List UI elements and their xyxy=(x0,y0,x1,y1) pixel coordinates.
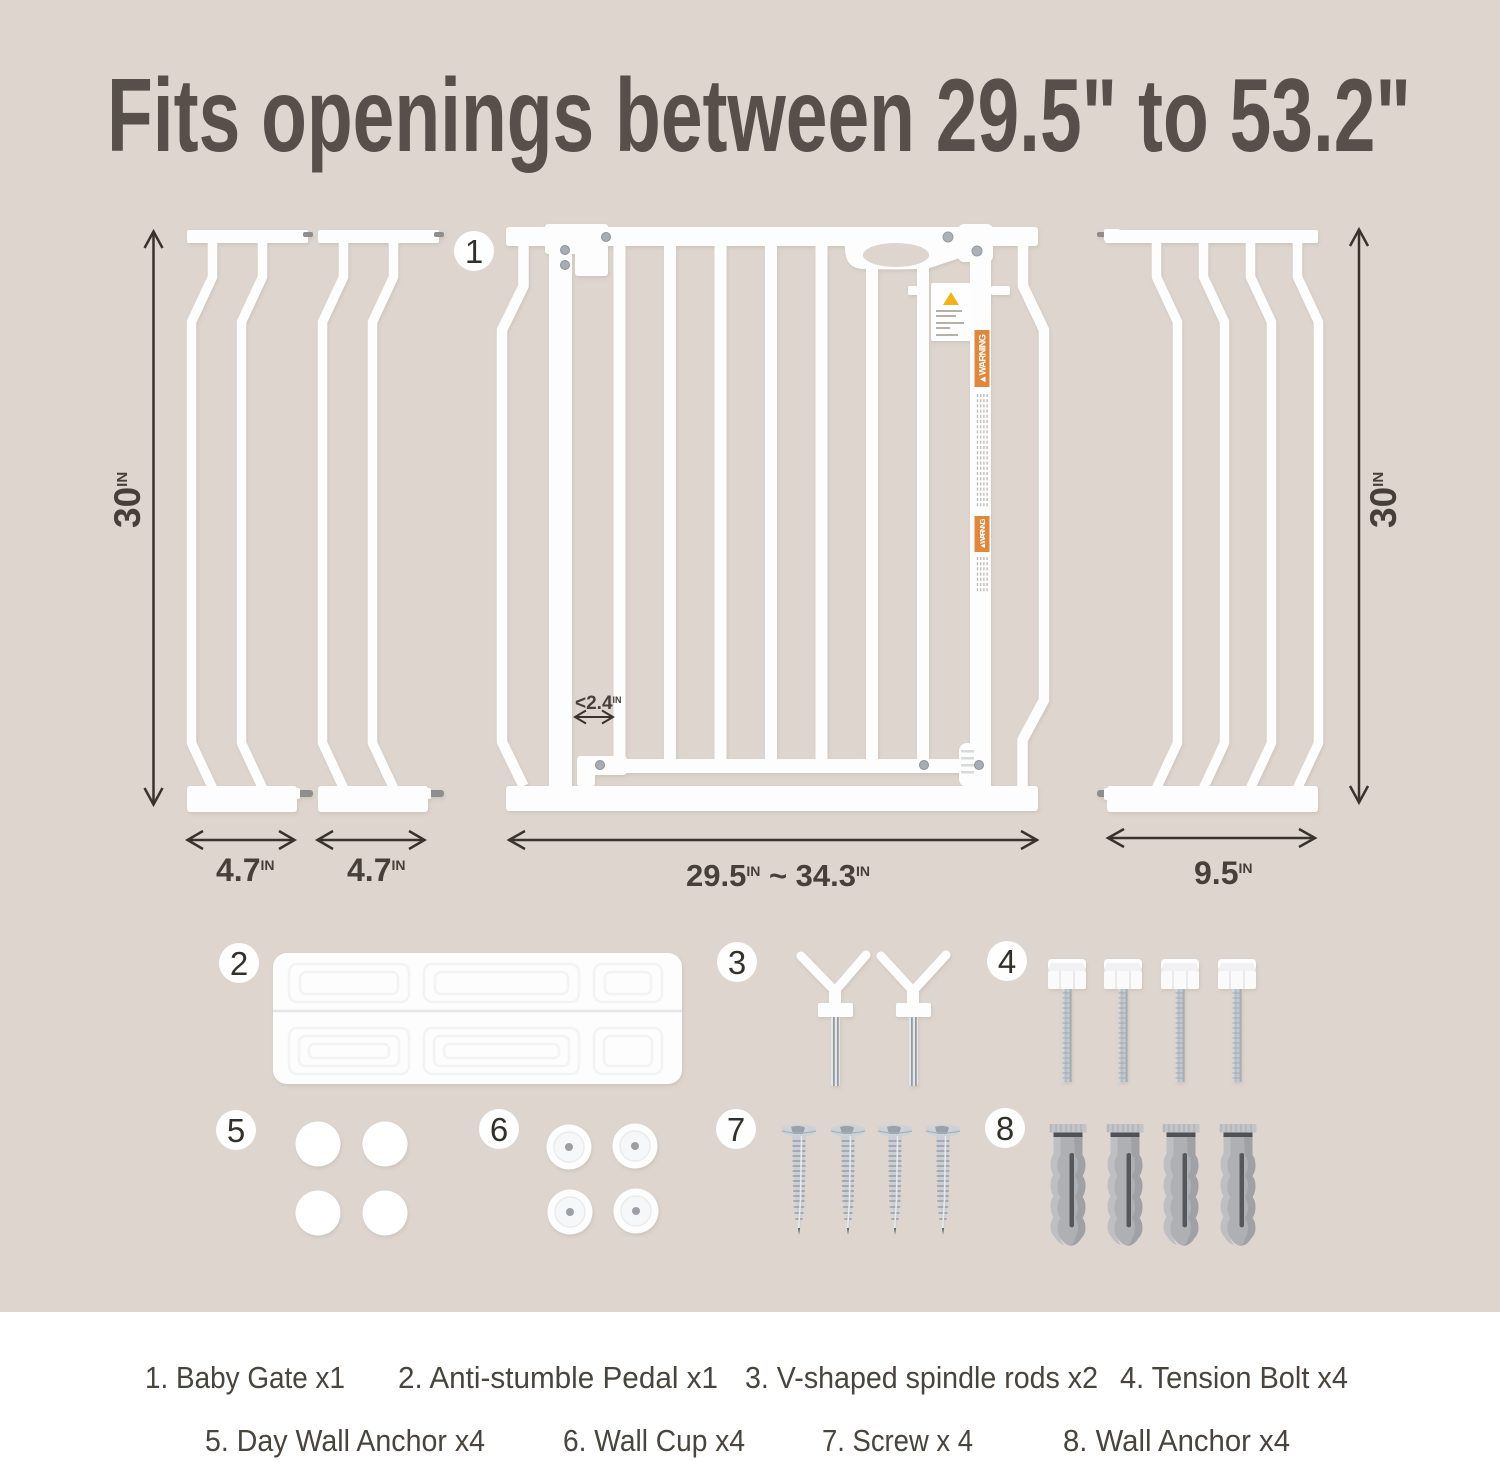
svg-text:8. Wall Anchor x4: 8. Wall Anchor x4 xyxy=(1063,1423,1290,1458)
svg-text:5: 5 xyxy=(227,1112,245,1149)
svg-text:6: 6 xyxy=(490,1111,508,1148)
svg-text:2: 2 xyxy=(230,945,248,982)
svg-text:1: 1 xyxy=(465,233,483,270)
svg-text:Fits openings between 29.5" to: Fits openings between 29.5" to 53.2" xyxy=(107,58,1411,174)
svg-text:7: 7 xyxy=(727,1111,745,1148)
svg-text:1. Baby Gate x1: 1. Baby Gate x1 xyxy=(145,1360,345,1395)
svg-text:4. Tension Bolt x4: 4. Tension Bolt x4 xyxy=(1120,1360,1348,1395)
svg-text:4: 4 xyxy=(998,943,1016,980)
svg-text:3. V-shaped spindle rods x2: 3. V-shaped spindle rods x2 xyxy=(745,1360,1098,1395)
svg-text:▲WARNING: ▲WARNING xyxy=(978,518,987,549)
svg-text:3: 3 xyxy=(728,944,746,981)
svg-text:2. Anti-stumble Pedal x1: 2. Anti-stumble Pedal x1 xyxy=(398,1360,718,1395)
svg-text:8: 8 xyxy=(996,1110,1014,1147)
svg-text:5. Day Wall Anchor x4: 5. Day Wall Anchor x4 xyxy=(205,1423,485,1458)
svg-text:7. Screw x 4: 7. Screw x 4 xyxy=(822,1423,973,1458)
svg-text:29.5IN ~ 34.3IN: 29.5IN ~ 34.3IN xyxy=(686,858,870,893)
svg-text:6. Wall Cup x4: 6. Wall Cup x4 xyxy=(563,1423,745,1458)
svg-text:▲WARNING: ▲WARNING xyxy=(978,334,989,384)
